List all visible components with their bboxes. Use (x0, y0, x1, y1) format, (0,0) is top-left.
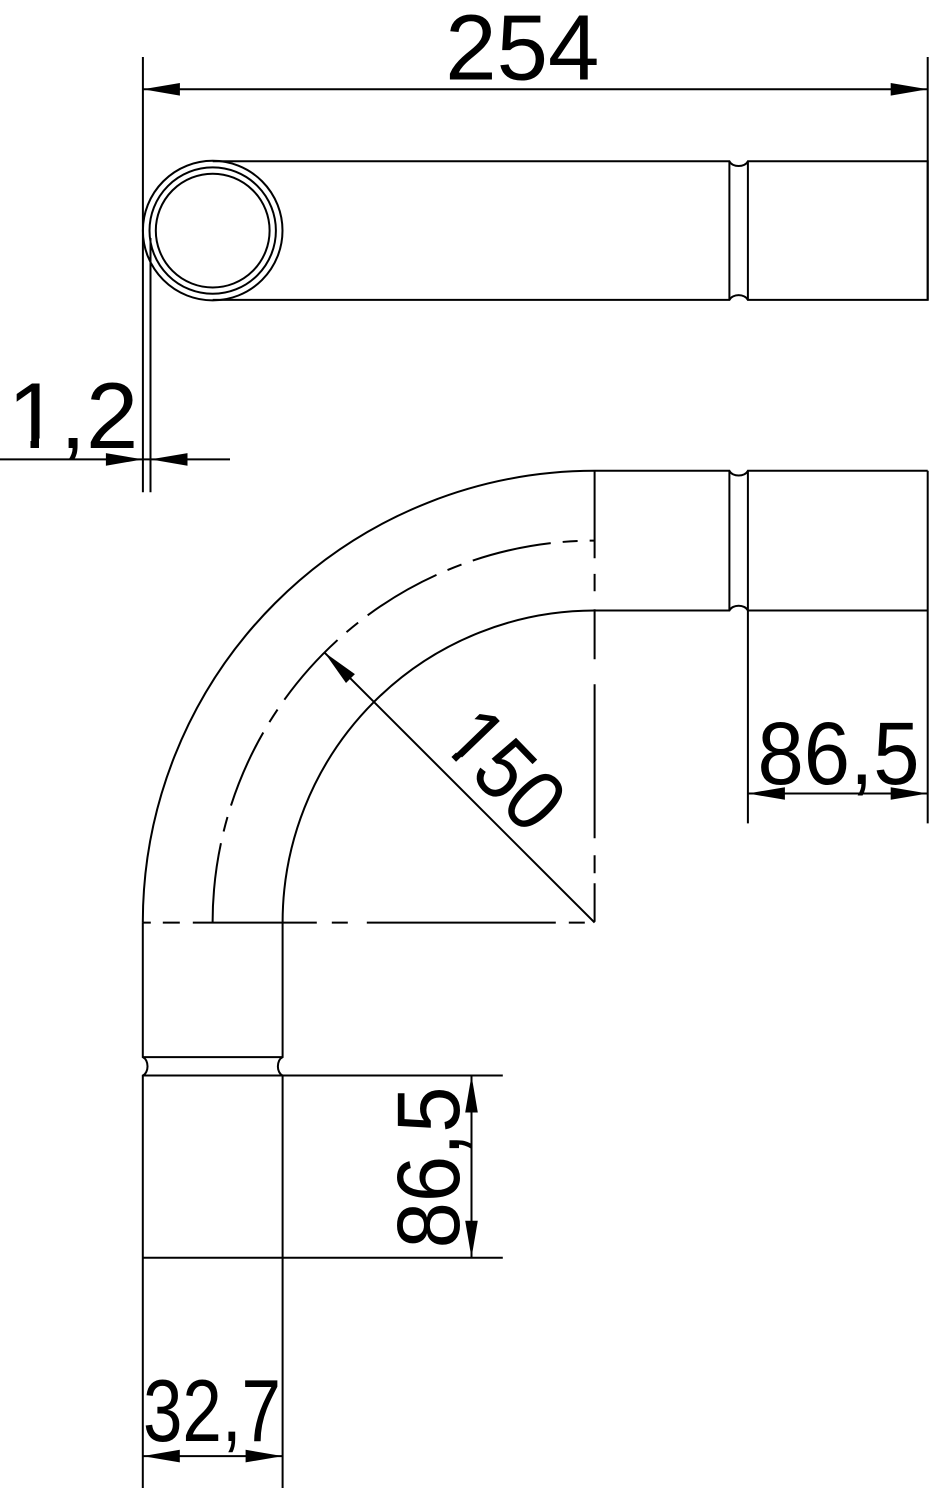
svg-text:86,5: 86,5 (378, 1086, 478, 1248)
svg-text:254: 254 (445, 0, 599, 99)
svg-text:86,5: 86,5 (758, 703, 920, 803)
svg-text:150: 150 (425, 689, 585, 850)
svg-text:1,2: 1,2 (8, 363, 139, 468)
svg-text:32,7: 32,7 (143, 1361, 281, 1460)
